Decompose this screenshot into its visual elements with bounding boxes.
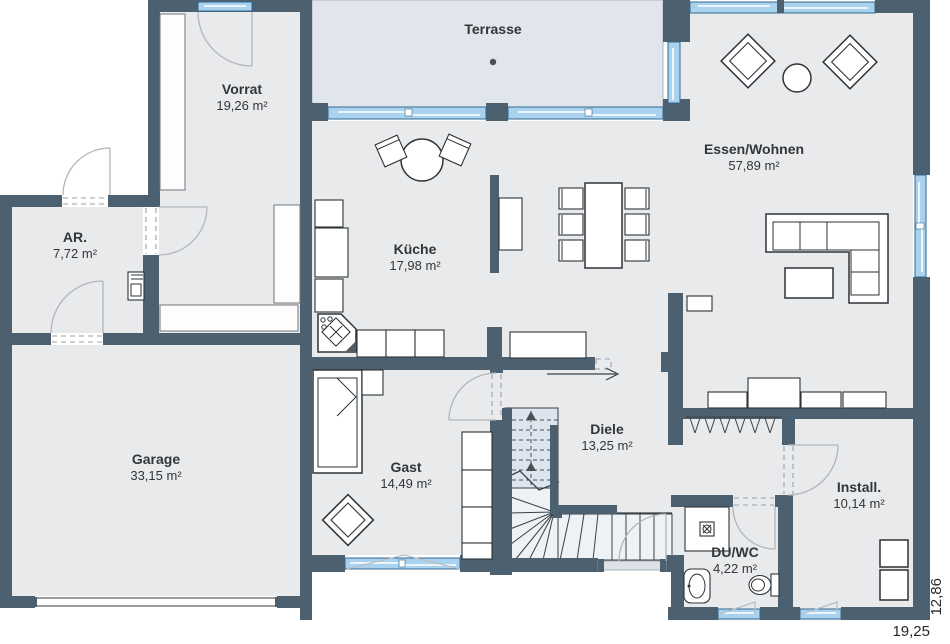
dining-sideboard [499,198,522,250]
dining-partition-wall [490,175,499,273]
wardrobe [462,432,492,470]
room-name: Gast [380,458,431,476]
kitchen-counter [357,330,386,357]
lowboard [708,392,747,408]
kitchen-counter [315,200,343,227]
shelf [160,305,298,331]
coffee-table [785,268,833,298]
room-label-essen-wohnen: Essen/Wohnen 57,89 m² [704,140,804,175]
bed [313,370,362,473]
wardrobe [462,470,492,507]
room-area: 33,15 m² [130,468,181,485]
room-label-garage: Garage 33,15 m² [130,450,181,485]
room-name: Garage [130,450,181,468]
room-name: Install. [833,478,884,496]
kitchen-counter [315,279,343,312]
chair [625,214,649,235]
chair [625,188,649,209]
room-area: 14,49 m² [380,476,431,493]
kitchen-counter [315,228,348,277]
tv-icon [687,296,712,311]
wardrobe [462,543,492,559]
floor-plan-drawing [0,0,950,644]
breakfast-table [401,139,443,181]
garage-gate [35,598,277,606]
nightstand [362,370,383,395]
install-room-window [800,609,841,619]
living-side-window [668,42,680,103]
shelf [274,205,300,303]
washer-icon [880,540,908,567]
dining-furniture [559,183,649,268]
chair [559,240,583,261]
room-label-terrasse: Terrasse [464,20,521,38]
chair [625,240,649,261]
ar-exterior-door [63,148,110,195]
dryer-icon [880,570,908,600]
room-area: 4,22 m² [711,561,758,578]
shower-wc-window [718,609,760,619]
terrace-floor [312,0,663,108]
room-label-vorrat: Vorrat 19,26 m² [216,80,267,115]
terrace-dot [490,59,496,65]
room-area: 13,25 m² [581,438,632,455]
room-label-kueche: Küche 17,98 m² [389,240,440,275]
lowboard [801,392,841,408]
room-area: 17,98 m² [389,258,440,275]
room-area: 7,72 m² [53,246,97,263]
lowboard [843,392,886,408]
room-area: 10,14 m² [833,496,884,513]
room-area: 57,89 m² [704,158,804,175]
room-name: Diele [581,420,632,438]
room-label-install: Install. 10,14 m² [833,478,884,513]
room-name: DU/WC [711,543,758,561]
chair [559,214,583,235]
dimension-width: 19,25 [872,623,930,640]
floor-plan: Terrasse Vorrat 19,26 m² Essen/Wohnen 57… [0,0,950,644]
wardrobe [462,507,492,543]
room-label-ar: AR. 7,72 m² [53,228,97,263]
room-name: Terrasse [464,20,521,38]
toilet-icon [771,574,779,596]
room-name: Essen/Wohnen [704,140,804,158]
shelf [160,14,185,190]
lowboard [748,378,800,408]
side-table [783,64,811,92]
room-label-du-wc: DU/WC 4,22 m² [711,543,758,578]
room-name: AR. [53,228,97,246]
dimension-height: 12,86 [928,578,945,616]
dining-table [585,183,622,268]
chair [559,188,583,209]
room-name: Küche [389,240,440,258]
room-name: Vorrat [216,80,267,98]
ar-wall-unit [128,272,144,300]
entrance-door-sill [598,561,666,570]
room-label-gast: Gast 14,49 m² [380,458,431,493]
kitchen-counter [386,330,415,357]
room-area: 19,26 m² [216,98,267,115]
room-label-diele: Diele 13,25 m² [581,420,632,455]
install-appliances [880,540,908,600]
kitchen-counter [415,330,444,357]
kitchen-sideboard [510,332,586,358]
